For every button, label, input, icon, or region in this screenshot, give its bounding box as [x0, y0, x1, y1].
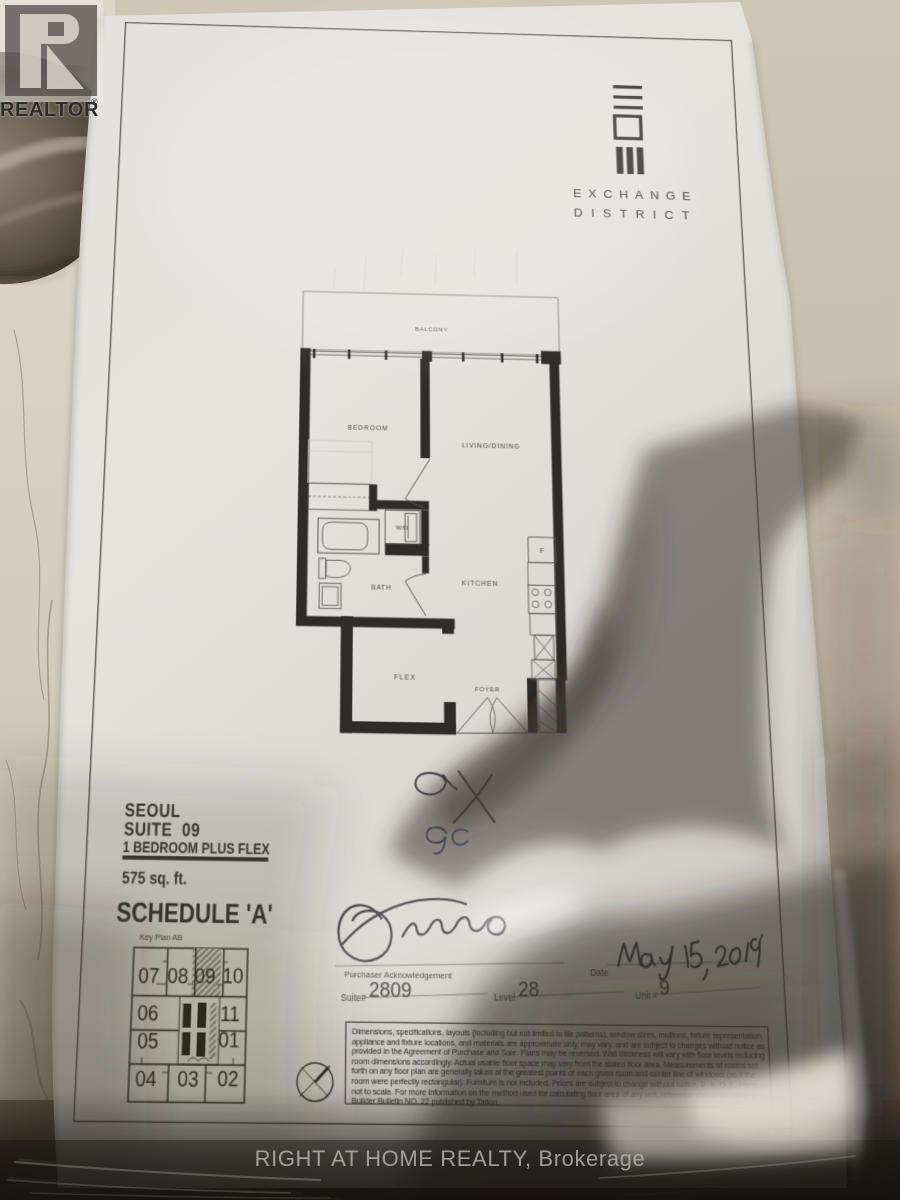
svg-text:®: ®	[91, 97, 98, 107]
svg-text:REALTOR: REALTOR	[0, 99, 99, 121]
